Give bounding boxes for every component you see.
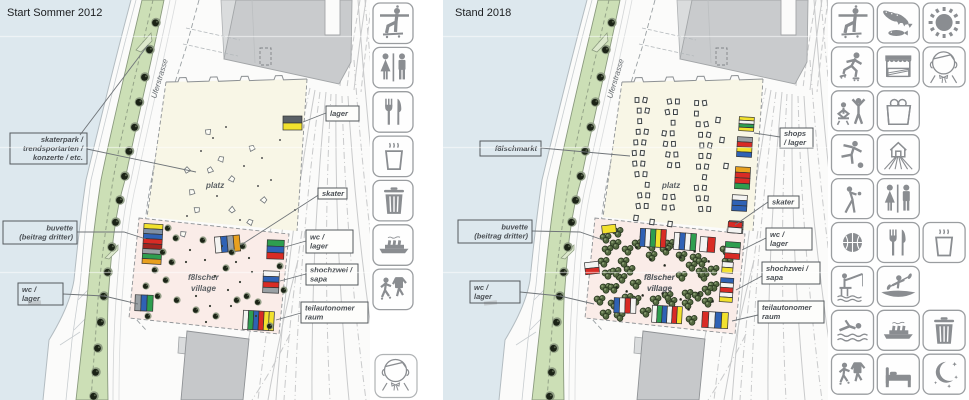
svg-text:wc /: wc / (474, 283, 489, 292)
svg-text:shochzwei /: shochzwei / (310, 266, 353, 275)
svg-text:raum: raum (305, 313, 324, 322)
svg-text:teilautonomer: teilautonomer (762, 303, 813, 312)
svg-text:teilautonomer: teilautonomer (305, 304, 356, 313)
svg-text:f8lschmarkt: f8lschmarkt (495, 144, 538, 153)
svg-text:village: village (647, 284, 672, 293)
svg-text:skaterpark /: skaterpark / (41, 135, 84, 144)
svg-text:lager: lager (330, 109, 349, 118)
svg-text:Stand 2018: Stand 2018 (455, 7, 511, 19)
svg-text:(beitrag dritter): (beitrag dritter) (19, 233, 73, 242)
svg-text:wc /: wc / (310, 233, 325, 242)
svg-text:/ lager: / lager (783, 138, 807, 147)
svg-text:sapa: sapa (766, 273, 783, 282)
svg-text:lager: lager (770, 239, 789, 248)
svg-text:Start Sommer 2012: Start Sommer 2012 (7, 7, 102, 19)
svg-text:sapa: sapa (310, 275, 327, 284)
svg-text:lager: lager (22, 294, 41, 303)
svg-text:f8lscher: f8lscher (644, 273, 676, 282)
svg-text:lager: lager (310, 242, 329, 251)
svg-text:buvette: buvette (501, 223, 528, 232)
svg-text:raum: raum (762, 312, 781, 321)
svg-text:konzerte / etc.: konzerte / etc. (33, 153, 83, 162)
svg-text:lager: lager (474, 292, 493, 301)
svg-text:wc /: wc / (22, 285, 37, 294)
svg-text:wc /: wc / (770, 230, 785, 239)
svg-text:buvette: buvette (46, 224, 73, 233)
svg-text:(beitrag dritter): (beitrag dritter) (474, 232, 528, 241)
svg-text:shops: shops (784, 129, 806, 138)
svg-text:skater: skater (322, 189, 345, 198)
svg-text:skater: skater (772, 198, 795, 207)
svg-text:shochzwei /: shochzwei / (766, 264, 809, 273)
svg-text:trendsportarten /: trendsportarten / (23, 144, 84, 153)
